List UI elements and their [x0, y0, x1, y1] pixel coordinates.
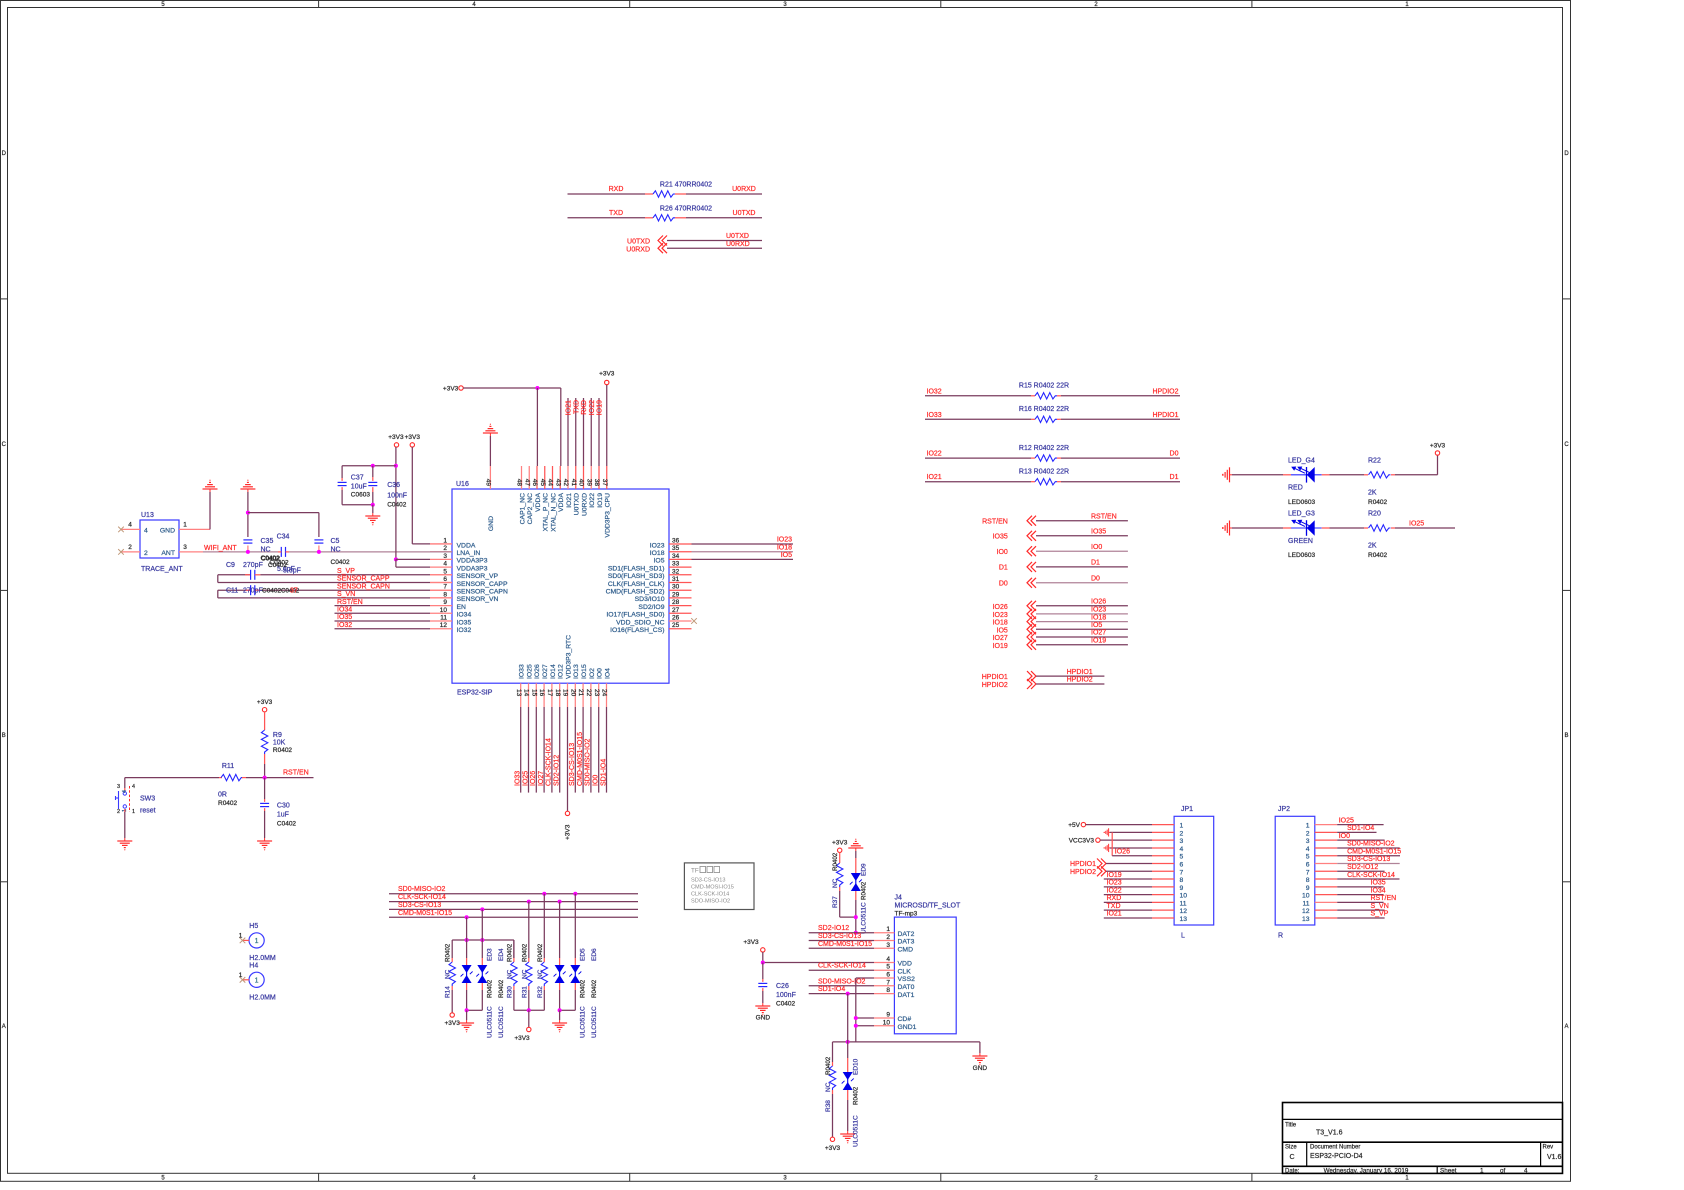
- svg-text:IO32: IO32: [927, 388, 942, 395]
- svg-text:IO25: IO25: [526, 664, 533, 679]
- svg-text:IO0: IO0: [1091, 544, 1102, 551]
- svg-text:IO21: IO21: [566, 400, 573, 415]
- svg-text:6: 6: [886, 972, 890, 979]
- svg-text:37: 37: [601, 479, 608, 487]
- svg-text:13: 13: [1180, 916, 1188, 923]
- svg-text:VDDA3P3: VDDA3P3: [457, 558, 488, 565]
- svg-text:SW3: SW3: [140, 796, 155, 803]
- svg-text:SD0-MISO-IO2: SD0-MISO-IO2: [585, 738, 592, 786]
- svg-text:4: 4: [1180, 846, 1184, 853]
- svg-text:ULC0511C: ULC0511C: [487, 1006, 494, 1038]
- svg-text:IO26: IO26: [1115, 848, 1130, 855]
- svg-text:1: 1: [239, 972, 243, 979]
- svg-text:reset: reset: [140, 808, 156, 815]
- svg-text:NC: NC: [445, 969, 452, 979]
- svg-text:L: L: [1181, 933, 1185, 940]
- svg-text:TXD: TXD: [1107, 903, 1121, 910]
- svg-text:NC: NC: [825, 1082, 832, 1092]
- svg-text:2K: 2K: [1368, 543, 1377, 550]
- svg-text:12: 12: [1180, 908, 1188, 915]
- svg-text:CLK: CLK: [898, 968, 912, 975]
- svg-text:IO33: IO33: [927, 412, 942, 419]
- svg-text:ULC0511C: ULC0511C: [853, 1115, 860, 1147]
- svg-text:SD1-IO4: SD1-IO4: [600, 759, 607, 786]
- svg-text:ESP32-SIP: ESP32-SIP: [457, 690, 493, 697]
- svg-text:IO16(FLASH_CS): IO16(FLASH_CS): [610, 627, 664, 634]
- svg-text:R0402: R0402: [445, 943, 452, 962]
- svg-text:RXD: RXD: [581, 400, 588, 415]
- svg-text:SD3-CS-IO13: SD3-CS-IO13: [1347, 856, 1390, 863]
- svg-text:42: 42: [562, 479, 569, 487]
- svg-text:20: 20: [569, 689, 576, 697]
- svg-text:IO34: IO34: [457, 612, 472, 619]
- svg-text:IO35: IO35: [993, 534, 1008, 541]
- svg-text:IO19: IO19: [993, 643, 1008, 650]
- svg-text:5: 5: [886, 964, 890, 971]
- svg-text:RXD: RXD: [1107, 895, 1122, 902]
- svg-text:IO19: IO19: [1091, 638, 1106, 645]
- svg-text:9: 9: [1180, 885, 1184, 892]
- svg-text:2: 2: [128, 544, 132, 551]
- svg-text:IO19: IO19: [1107, 872, 1122, 879]
- svg-text:Date:: Date:: [1285, 1168, 1300, 1174]
- svg-text:49: 49: [485, 479, 492, 487]
- svg-text:S_VN: S_VN: [337, 591, 355, 598]
- svg-text:IO23: IO23: [650, 542, 665, 549]
- svg-text:12: 12: [440, 622, 448, 629]
- svg-text:U0TXD: U0TXD: [574, 493, 581, 515]
- svg-text:2: 2: [117, 809, 120, 815]
- svg-text:10uF: 10uF: [351, 484, 367, 491]
- svg-text:R0402: R0402: [591, 979, 598, 998]
- svg-text:12: 12: [1302, 908, 1310, 915]
- svg-text:RST/EN: RST/EN: [1371, 895, 1397, 902]
- svg-text:IO33: IO33: [519, 664, 526, 679]
- svg-text:HPDIO2: HPDIO2: [1067, 677, 1093, 684]
- svg-text:ULC0511C: ULC0511C: [861, 902, 868, 934]
- svg-text:SD3/IO10: SD3/IO10: [635, 596, 665, 603]
- svg-text:R15 R0402 22R: R15 R0402 22R: [1019, 383, 1069, 390]
- svg-text:32: 32: [672, 568, 680, 575]
- svg-text:IO35: IO35: [457, 619, 472, 626]
- svg-text:U13: U13: [141, 512, 154, 519]
- svg-text:R37: R37: [832, 896, 839, 908]
- svg-text:48: 48: [516, 479, 523, 487]
- svg-text:VDDA: VDDA: [535, 493, 542, 512]
- svg-text:11: 11: [440, 615, 447, 622]
- svg-text:CMD-M0S1-IO15: CMD-M0S1-IO15: [398, 910, 452, 917]
- svg-text:R13 R0402 22R: R13 R0402 22R: [1019, 468, 1069, 475]
- svg-text:+3V3: +3V3: [514, 1035, 530, 1042]
- svg-text:IO25: IO25: [522, 771, 529, 786]
- svg-text:Rev: Rev: [1543, 1145, 1554, 1151]
- svg-text:10: 10: [1302, 893, 1310, 900]
- svg-text:R: R: [1278, 933, 1283, 940]
- svg-text:TRACE_ANT: TRACE_ANT: [141, 566, 183, 573]
- svg-text:16: 16: [538, 689, 545, 697]
- svg-text:VDD_SDIO_NC: VDD_SDIO_NC: [616, 619, 664, 626]
- svg-text:6: 6: [1180, 862, 1184, 869]
- svg-text:IO5: IO5: [781, 552, 792, 559]
- svg-text:11: 11: [1302, 900, 1309, 907]
- svg-text:4: 4: [886, 956, 890, 963]
- svg-text:4: 4: [128, 522, 132, 529]
- svg-text:0R: 0R: [218, 792, 227, 799]
- svg-text:IO12: IO12: [558, 664, 565, 679]
- svg-text:RED: RED: [1288, 485, 1303, 492]
- svg-text:31: 31: [672, 576, 680, 583]
- svg-text:RST/EN: RST/EN: [982, 518, 1008, 525]
- svg-text:41: 41: [570, 479, 577, 487]
- svg-text:C0402: C0402: [277, 821, 297, 828]
- svg-text:IO25: IO25: [1409, 521, 1424, 528]
- svg-text:SD2-IO12: SD2-IO12: [1347, 864, 1378, 871]
- svg-text:+3V3: +3V3: [257, 699, 273, 706]
- svg-text:SENSOR_VN: SENSOR_VN: [457, 596, 499, 603]
- svg-text:D: D: [2, 151, 7, 157]
- svg-text:Size: Size: [1285, 1145, 1297, 1151]
- svg-text:SENSOR_VP: SENSOR_VP: [457, 573, 499, 580]
- svg-text:C26: C26: [776, 983, 789, 990]
- svg-text:ED6: ED6: [591, 948, 598, 961]
- svg-text:D1: D1: [999, 565, 1008, 572]
- svg-text:SD0(FLASH_SD3): SD0(FLASH_SD3): [608, 573, 665, 580]
- svg-text:+3V3: +3V3: [599, 371, 615, 378]
- svg-text:1: 1: [183, 522, 187, 529]
- svg-text:TXD: TXD: [609, 210, 623, 217]
- svg-text:1: 1: [255, 938, 259, 945]
- svg-text:SENSOR_CAPP: SENSOR_CAPP: [457, 581, 508, 588]
- svg-text:3: 3: [117, 784, 120, 790]
- svg-text:CMD-M0S1-IO15: CMD-M0S1-IO15: [818, 941, 872, 948]
- svg-text:270pF: 270pF: [243, 588, 263, 595]
- svg-text:R0402: R0402: [832, 852, 839, 871]
- svg-text:R0402: R0402: [853, 1086, 860, 1105]
- svg-text:29: 29: [672, 591, 680, 598]
- svg-text:TF-mp3: TF-mp3: [895, 910, 918, 917]
- svg-text:IO27: IO27: [993, 635, 1008, 642]
- svg-text:3: 3: [1180, 838, 1184, 845]
- svg-text:D0: D0: [1170, 451, 1179, 458]
- svg-text:R0402: R0402: [1368, 499, 1388, 506]
- svg-text:ED10: ED10: [853, 1058, 860, 1075]
- svg-text:RST/EN: RST/EN: [1091, 513, 1117, 520]
- svg-text:IO18: IO18: [993, 620, 1008, 627]
- svg-text:IO35: IO35: [1371, 880, 1386, 887]
- svg-text:LED0603: LED0603: [1288, 499, 1315, 506]
- svg-text:7: 7: [1180, 869, 1184, 876]
- svg-text:5: 5: [1306, 854, 1310, 861]
- svg-text:13: 13: [515, 689, 522, 697]
- svg-text:SENSOR_CAPP: SENSOR_CAPP: [337, 576, 390, 583]
- svg-text:VDDA3P3: VDDA3P3: [457, 565, 488, 572]
- svg-text:R22: R22: [1368, 457, 1381, 464]
- svg-text:C0603: C0603: [351, 492, 371, 499]
- svg-text:IO5: IO5: [1091, 622, 1102, 629]
- svg-text:+3V3: +3V3: [565, 824, 572, 840]
- svg-text:R0402: R0402: [580, 979, 587, 998]
- svg-text:17: 17: [546, 689, 553, 697]
- svg-text:14: 14: [523, 689, 530, 697]
- svg-text:39: 39: [585, 479, 592, 487]
- svg-text:IO4: IO4: [604, 668, 611, 679]
- svg-text:RST/EN: RST/EN: [283, 770, 309, 777]
- svg-text:10: 10: [883, 1019, 891, 1026]
- svg-text:4: 4: [1306, 846, 1310, 853]
- svg-text:10: 10: [440, 607, 448, 614]
- svg-text:TF: TF: [691, 868, 699, 875]
- svg-text:1uF: 1uF: [277, 812, 289, 819]
- svg-text:C36: C36: [387, 482, 400, 489]
- svg-text:R14: R14: [445, 986, 452, 998]
- svg-text:V1.6: V1.6: [1547, 1154, 1562, 1161]
- svg-text:1: 1: [886, 926, 890, 933]
- svg-text:IO14: IO14: [550, 664, 557, 679]
- svg-text:R9: R9: [273, 732, 282, 739]
- svg-text:Wednesday, January 16, 2019: Wednesday, January 16, 2019: [1324, 1167, 1409, 1174]
- svg-text:SD3-CS-IO13: SD3-CS-IO13: [818, 933, 861, 940]
- svg-text:IO35: IO35: [337, 614, 352, 621]
- svg-text:J4: J4: [895, 895, 903, 902]
- svg-text:8: 8: [1306, 877, 1310, 884]
- svg-text:U16: U16: [456, 481, 469, 488]
- svg-text:SD3-CS-IO13: SD3-CS-IO13: [691, 878, 726, 884]
- svg-text:GND: GND: [160, 527, 175, 534]
- svg-text:IO27: IO27: [1091, 630, 1106, 637]
- svg-text:C9: C9: [226, 562, 235, 569]
- svg-text:HPDIO2: HPDIO2: [1070, 869, 1096, 876]
- svg-text:ULC0511C: ULC0511C: [580, 1006, 587, 1038]
- svg-text:R38: R38: [825, 1100, 832, 1112]
- svg-text:19: 19: [562, 689, 569, 697]
- svg-text:IO21: IO21: [927, 474, 942, 481]
- svg-text:RXD: RXD: [609, 186, 624, 193]
- svg-text:HPDIO2: HPDIO2: [982, 682, 1008, 689]
- svg-text:2: 2: [886, 934, 890, 941]
- svg-text:36: 36: [672, 538, 680, 545]
- svg-text:IO25: IO25: [1339, 817, 1354, 824]
- svg-text:VDD: VDD: [898, 961, 912, 968]
- svg-text:+5V: +5V: [1068, 822, 1080, 829]
- svg-text:SD2-IO12: SD2-IO12: [818, 925, 849, 932]
- svg-text:U0RXD: U0RXD: [732, 186, 756, 193]
- svg-text:D0: D0: [1091, 576, 1100, 583]
- svg-text:NC: NC: [521, 969, 528, 979]
- svg-text:XTAL_N_NC: XTAL_N_NC: [550, 493, 557, 532]
- svg-text:IO22: IO22: [589, 400, 596, 415]
- svg-text:C: C: [1289, 1154, 1294, 1161]
- svg-text:VCC3V3: VCC3V3: [1069, 838, 1095, 845]
- svg-text:R30: R30: [506, 986, 513, 998]
- svg-text:DAT2: DAT2: [898, 931, 915, 938]
- svg-text:IO22: IO22: [589, 493, 596, 508]
- svg-text:SD2-IO12: SD2-IO12: [554, 755, 561, 786]
- svg-text:IO18: IO18: [777, 544, 792, 551]
- svg-text:ED3: ED3: [487, 948, 494, 961]
- svg-text:2: 2: [1180, 830, 1184, 837]
- svg-text:R0402: R0402: [506, 943, 513, 962]
- svg-text:3: 3: [1306, 838, 1310, 845]
- svg-text:IO17(FLASH_SD0): IO17(FLASH_SD0): [606, 612, 664, 619]
- svg-text:LNA_IN: LNA_IN: [457, 550, 481, 557]
- svg-text:S_VP: S_VP: [337, 568, 355, 575]
- svg-text:C0402: C0402: [776, 1001, 796, 1008]
- svg-text:ED9: ED9: [861, 863, 868, 876]
- svg-text:NC: NC: [537, 969, 544, 979]
- svg-text:C35: C35: [261, 538, 274, 545]
- svg-text:+3V3: +3V3: [1430, 443, 1446, 450]
- svg-text:22: 22: [585, 689, 592, 697]
- svg-text:S_VN: S_VN: [1371, 903, 1389, 910]
- svg-text:1: 1: [132, 809, 135, 815]
- svg-text:Document Number: Document Number: [1310, 1145, 1360, 1151]
- svg-text:JP2: JP2: [1278, 806, 1290, 813]
- svg-text:21: 21: [577, 689, 584, 697]
- svg-text:IO0: IO0: [597, 668, 604, 679]
- svg-text:U0TXD: U0TXD: [627, 238, 650, 245]
- svg-text:C37: C37: [351, 475, 364, 482]
- svg-text:2: 2: [144, 550, 148, 557]
- svg-text:44: 44: [547, 479, 554, 487]
- svg-text:SD0-MISO-IO2: SD0-MISO-IO2: [818, 978, 866, 985]
- svg-text:IO5: IO5: [654, 558, 665, 565]
- svg-text:SENSOR_CAPN: SENSOR_CAPN: [457, 589, 508, 596]
- svg-text:IO18: IO18: [1091, 614, 1106, 621]
- svg-text:IO27: IO27: [538, 771, 545, 786]
- svg-text:25: 25: [672, 622, 680, 629]
- svg-text:100nF: 100nF: [776, 992, 796, 999]
- svg-text:38: 38: [593, 479, 600, 487]
- svg-text:R0402: R0402: [218, 800, 238, 807]
- svg-text:SD3-CS-IO13: SD3-CS-IO13: [569, 743, 576, 786]
- svg-text:CLK-SCK-IO14: CLK-SCK-IO14: [1347, 872, 1395, 879]
- svg-text:R11: R11: [222, 763, 234, 770]
- svg-text:A: A: [2, 1024, 6, 1030]
- svg-text:DAT1: DAT1: [898, 992, 915, 999]
- svg-text:+3V3: +3V3: [825, 1145, 841, 1152]
- svg-text:VDD3P3_RTC: VDD3P3_RTC: [565, 635, 572, 679]
- svg-text:2: 2: [443, 545, 447, 552]
- svg-text:1: 1: [239, 932, 243, 939]
- svg-text:R0402: R0402: [521, 943, 528, 962]
- svg-text:IO13: IO13: [573, 664, 580, 679]
- svg-text:100nF: 100nF: [387, 493, 407, 500]
- svg-text:RST/EN: RST/EN: [337, 599, 363, 606]
- svg-text:10K: 10K: [273, 740, 286, 747]
- svg-text:18: 18: [554, 689, 561, 697]
- svg-text:A: A: [1564, 1024, 1568, 1030]
- svg-text:SD1-IO4: SD1-IO4: [1347, 825, 1374, 832]
- svg-text:ANT: ANT: [161, 550, 175, 557]
- svg-text:IO5: IO5: [997, 627, 1008, 634]
- svg-text:30: 30: [672, 584, 680, 591]
- svg-text:GND: GND: [756, 1015, 771, 1022]
- svg-text:SDO-MISO-IO2: SDO-MISO-IO2: [691, 899, 730, 905]
- svg-text:TXD: TXD: [573, 400, 580, 414]
- svg-text:C: C: [2, 442, 7, 448]
- svg-text:CD#: CD#: [898, 1016, 912, 1023]
- svg-text:HPDIO1: HPDIO1: [982, 674, 1008, 681]
- svg-text:C5: C5: [331, 538, 340, 545]
- svg-text:U0RXD: U0RXD: [626, 246, 650, 253]
- svg-text:28: 28: [672, 599, 680, 606]
- svg-text:S_VP: S_VP: [1371, 911, 1389, 918]
- svg-text:IO22: IO22: [927, 451, 942, 458]
- svg-text:HPDIO1: HPDIO1: [1067, 669, 1093, 676]
- svg-text:7: 7: [886, 979, 890, 986]
- svg-text:IO21: IO21: [1107, 911, 1122, 918]
- svg-text:CLK-SCK-IO14: CLK-SCK-IO14: [818, 963, 866, 970]
- svg-text:CAP2_NC: CAP2_NC: [527, 493, 534, 524]
- svg-text:D1: D1: [1091, 560, 1100, 567]
- svg-text:GND1: GND1: [898, 1024, 917, 1031]
- svg-text:IO26: IO26: [993, 604, 1008, 611]
- svg-text:34: 34: [672, 553, 680, 560]
- svg-text:R0402: R0402: [537, 943, 544, 962]
- svg-text:Sheet: Sheet: [1440, 1167, 1457, 1174]
- svg-text:SD1(FLASH_SD1): SD1(FLASH_SD1): [608, 565, 665, 572]
- svg-text:H4: H4: [249, 962, 258, 969]
- svg-text:ULC0511C: ULC0511C: [498, 1006, 505, 1038]
- svg-text:+3V3: +3V3: [405, 434, 421, 441]
- svg-text:ESP32-PCIO-D4: ESP32-PCIO-D4: [1310, 1153, 1363, 1160]
- svg-text:CLK(FLASH_CLK): CLK(FLASH_CLK): [608, 581, 665, 588]
- svg-text:NC: NC: [261, 547, 271, 554]
- svg-text:R12 R0402 22R: R12 R0402 22R: [1019, 445, 1069, 452]
- svg-text:4: 4: [1524, 1167, 1528, 1174]
- svg-text:+3V3: +3V3: [743, 939, 759, 946]
- svg-text:R21 470RR0402: R21 470RR0402: [660, 182, 712, 189]
- svg-text:NC: NC: [506, 969, 513, 979]
- svg-text:7: 7: [1306, 869, 1310, 876]
- svg-text:IO32: IO32: [457, 627, 472, 634]
- svg-text:5.6pF: 5.6pF: [283, 568, 301, 575]
- svg-text:+3V3: +3V3: [443, 386, 459, 393]
- svg-text:SD2/IO9: SD2/IO9: [638, 604, 664, 611]
- svg-text:4: 4: [122, 790, 128, 793]
- svg-text:IO0: IO0: [593, 775, 600, 786]
- svg-text:IO22: IO22: [1107, 887, 1122, 894]
- svg-text:IO0: IO0: [1339, 833, 1350, 840]
- svg-text:CLK-SCK-IO14: CLK-SCK-IO14: [691, 892, 729, 898]
- svg-text:4: 4: [144, 527, 148, 534]
- svg-text:JP1: JP1: [1181, 806, 1193, 813]
- svg-text:DAT0: DAT0: [898, 984, 915, 991]
- svg-text:R0402: R0402: [1368, 552, 1388, 559]
- svg-text:43: 43: [554, 479, 561, 487]
- svg-text:8: 8: [1180, 877, 1184, 884]
- svg-text:R31: R31: [521, 986, 528, 998]
- svg-text:2: 2: [1306, 830, 1310, 837]
- svg-text:9: 9: [1306, 885, 1310, 892]
- svg-text:U0TXD: U0TXD: [726, 233, 749, 240]
- svg-text:R20: R20: [1368, 510, 1381, 517]
- svg-text:40: 40: [578, 479, 585, 487]
- svg-text:NC: NC: [832, 878, 839, 888]
- svg-text:R0402: R0402: [273, 747, 293, 754]
- svg-text:IO27: IO27: [542, 664, 549, 679]
- svg-text:CMD: CMD: [898, 947, 914, 954]
- svg-text:13: 13: [1302, 916, 1310, 923]
- svg-text:MICROSD/TF_SLOT: MICROSD/TF_SLOT: [895, 903, 961, 910]
- svg-text:Title: Title: [1285, 1123, 1297, 1129]
- svg-text:U0RXD: U0RXD: [726, 241, 750, 248]
- svg-text:10: 10: [1180, 893, 1188, 900]
- svg-text:23: 23: [593, 689, 600, 697]
- svg-text:IO18: IO18: [650, 550, 665, 557]
- svg-text:WIFI_ANT: WIFI_ANT: [204, 545, 237, 552]
- svg-text:IO33: IO33: [515, 771, 522, 786]
